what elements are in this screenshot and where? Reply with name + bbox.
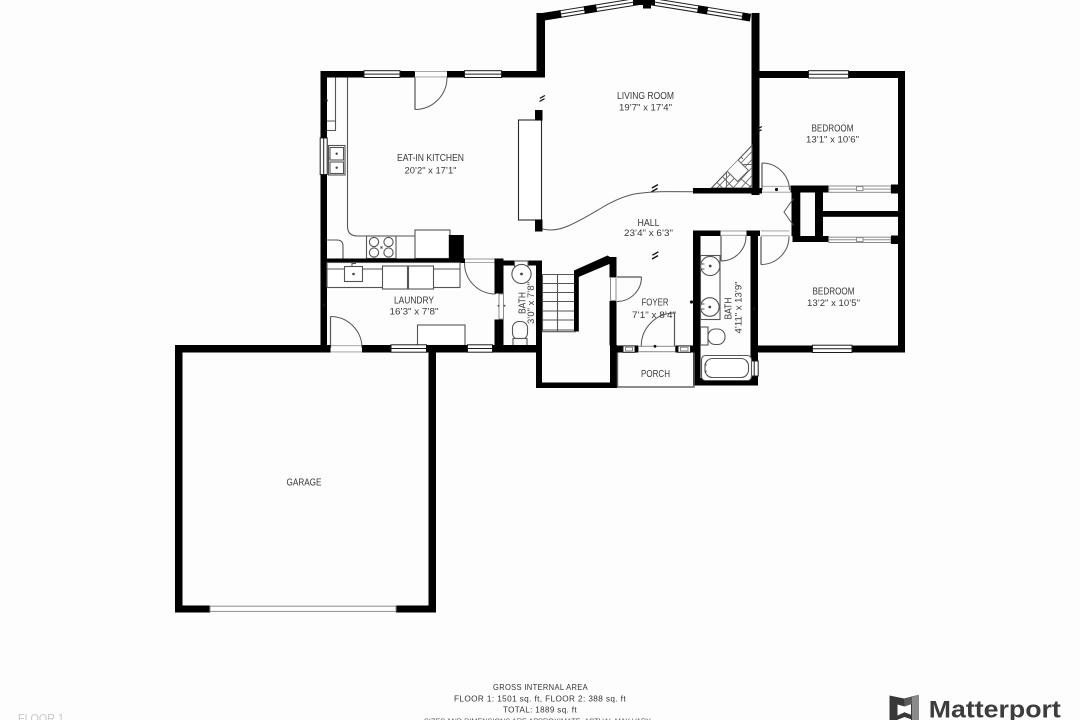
svg-text:FLOOR 1: 1501 sq. ft, FLOOR 2:: FLOOR 1: 1501 sq. ft, FLOOR 2: 388 sq. f…	[454, 694, 626, 704]
svg-text:BEDROOM: BEDROOM	[813, 287, 855, 298]
svg-text:GARAGE: GARAGE	[287, 478, 322, 489]
svg-text:FOYER: FOYER	[642, 298, 669, 309]
svg-text:TOTAL: 1889 sq. ft: TOTAL: 1889 sq. ft	[503, 705, 577, 715]
svg-text:16’3" x 7’8": 16’3" x 7’8"	[390, 307, 439, 318]
svg-text:4’11" x 13’9": 4’11" x 13’9"	[734, 282, 745, 334]
svg-text:19’7" x 17’4": 19’7" x 17’4"	[619, 103, 672, 114]
svg-text:23’4" x 6’3": 23’4" x 6’3"	[624, 228, 673, 239]
svg-text:SIZES AND DIMENSIONS ARE APPRO: SIZES AND DIMENSIONS ARE APPROXIMATE, AC…	[424, 716, 651, 720]
svg-text:PORCH: PORCH	[641, 369, 670, 380]
svg-text:BEDROOM: BEDROOM	[812, 124, 854, 135]
svg-text:FLOOR 1: FLOOR 1	[18, 714, 64, 720]
svg-text:Matterport: Matterport	[929, 697, 1061, 720]
svg-text:EAT-IN KITCHEN: EAT-IN KITCHEN	[397, 153, 464, 164]
svg-text:LAUNDRY: LAUNDRY	[394, 296, 434, 307]
svg-text:13’2" x 10’5": 13’2" x 10’5"	[807, 298, 860, 309]
svg-text:LIVING ROOM: LIVING ROOM	[617, 91, 674, 102]
svg-text:13’1" x 10’6": 13’1" x 10’6"	[806, 135, 859, 146]
svg-text:GROSS INTERNAL AREA: GROSS INTERNAL AREA	[493, 682, 588, 692]
svg-text:3’0" x 7’8": 3’0" x 7’8"	[526, 282, 537, 324]
svg-text:20’2" x 17’1": 20’2" x 17’1"	[405, 166, 457, 177]
svg-text:7’1" x 8’4": 7’1" x 8’4"	[632, 310, 676, 321]
